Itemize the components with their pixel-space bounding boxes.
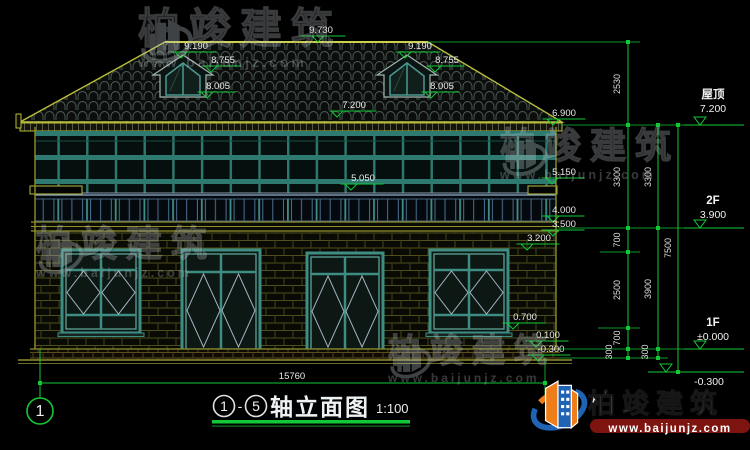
level-roof-value: 7.200 bbox=[700, 103, 726, 115]
elev-label: 9.730 bbox=[309, 25, 333, 36]
dim-700: 700 bbox=[612, 232, 622, 247]
elev-label: 5.150 bbox=[552, 167, 576, 178]
dim-300b: 300 bbox=[640, 344, 650, 359]
floor-slab-band bbox=[31, 222, 559, 232]
elev-label: 5.050 bbox=[351, 173, 375, 184]
total-width-dim: 15760 bbox=[279, 371, 305, 382]
level-2f: 2F 3.900 bbox=[684, 195, 744, 228]
roof bbox=[16, 42, 562, 131]
plinth bbox=[18, 349, 572, 364]
ledge-right bbox=[528, 186, 557, 194]
elev-label: 8.755 bbox=[435, 55, 459, 66]
second-floor-glazing bbox=[35, 131, 556, 193]
title-dash: - bbox=[238, 398, 243, 414]
level-1f-label: 1F bbox=[706, 317, 719, 329]
elev-mark-ridge: 9.730 bbox=[300, 25, 345, 42]
window-1 bbox=[58, 250, 144, 337]
level-ground-value: -0.300 bbox=[694, 376, 724, 388]
title-axis-start: 1 bbox=[220, 398, 228, 414]
elev-label: 8.005 bbox=[206, 81, 230, 92]
gutter-end bbox=[16, 114, 21, 128]
dim-7500: 7500 bbox=[663, 238, 673, 258]
drawing-title: 1 - 5 轴立面图 1:100 bbox=[212, 394, 410, 427]
elev-label: 3.200 bbox=[527, 233, 551, 244]
elev-label: -0.300 bbox=[538, 344, 565, 355]
title-axis-end: 5 bbox=[252, 398, 260, 414]
french-window-3 bbox=[307, 253, 383, 353]
cad-elevation-screenshot: 9.730 9.190 8.755 8.005 9.190 8.755 bbox=[0, 0, 750, 450]
level-roof: 屋顶 7.200 bbox=[684, 87, 744, 125]
title-text: 轴立面图 bbox=[270, 394, 370, 420]
elev-label: 9.190 bbox=[408, 41, 432, 52]
dim-300: 300 bbox=[604, 344, 614, 359]
dim-2500: 2500 bbox=[612, 280, 622, 300]
floor-levels: 屋顶 7.200 2F 3.900 1F ±0.000 -0.300 bbox=[648, 87, 744, 388]
elev-label: 0.700 bbox=[513, 312, 537, 323]
ledge-left bbox=[30, 186, 82, 194]
level-2f-label: 2F bbox=[706, 195, 719, 207]
level-2f-value: 3.900 bbox=[700, 209, 726, 221]
level-1f: 1F ±0.000 bbox=[684, 317, 744, 349]
axis-bubble-number: 1 bbox=[36, 403, 45, 420]
dim-3900: 3900 bbox=[643, 279, 653, 299]
dim-3300: 3300 bbox=[612, 167, 622, 187]
elev-label: 7.200 bbox=[342, 100, 366, 111]
level-ground: -0.300 bbox=[648, 364, 744, 388]
elev-label: 8.005 bbox=[430, 81, 454, 92]
title-scale: 1:100 bbox=[376, 401, 409, 416]
elev-label: 9.190 bbox=[184, 41, 208, 52]
elev-label: 8.755 bbox=[211, 55, 235, 66]
dim-2530: 2530 bbox=[612, 74, 622, 94]
elev-label: 6.900 bbox=[552, 108, 576, 119]
dim-700b: 700 bbox=[612, 330, 622, 345]
dim-3300b: 3300 bbox=[643, 167, 653, 187]
level-roof-label: 屋顶 bbox=[702, 87, 725, 101]
window-4 bbox=[426, 250, 512, 337]
elev-label: 4.000 bbox=[552, 205, 576, 216]
elev-label: 0.100 bbox=[536, 330, 560, 341]
title-underline bbox=[212, 420, 410, 424]
french-window-2 bbox=[182, 250, 260, 353]
elevation-drawing: 9.730 9.190 8.755 8.005 9.190 8.755 bbox=[0, 0, 750, 450]
